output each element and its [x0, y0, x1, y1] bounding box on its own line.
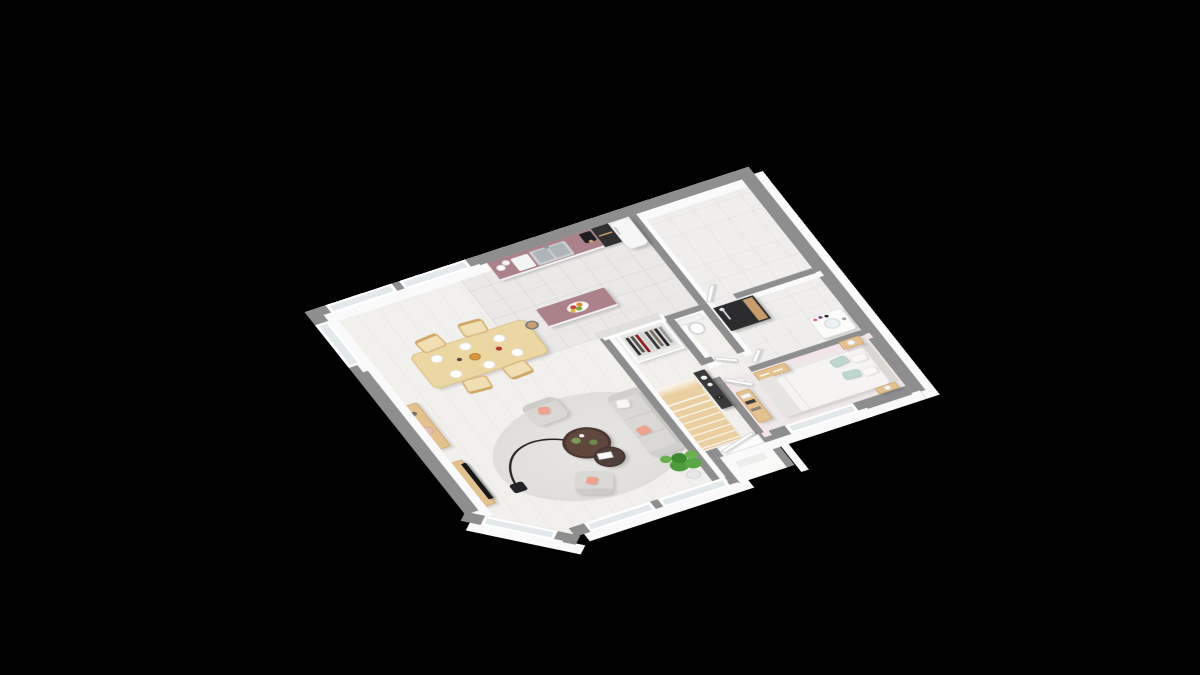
sofa-cushion-seam: [623, 411, 652, 421]
floor-plan: [305, 167, 980, 604]
scene-background: [0, 0, 1200, 675]
armchair-backrest: [575, 488, 613, 494]
armchair-pillow-pink: [537, 406, 550, 414]
